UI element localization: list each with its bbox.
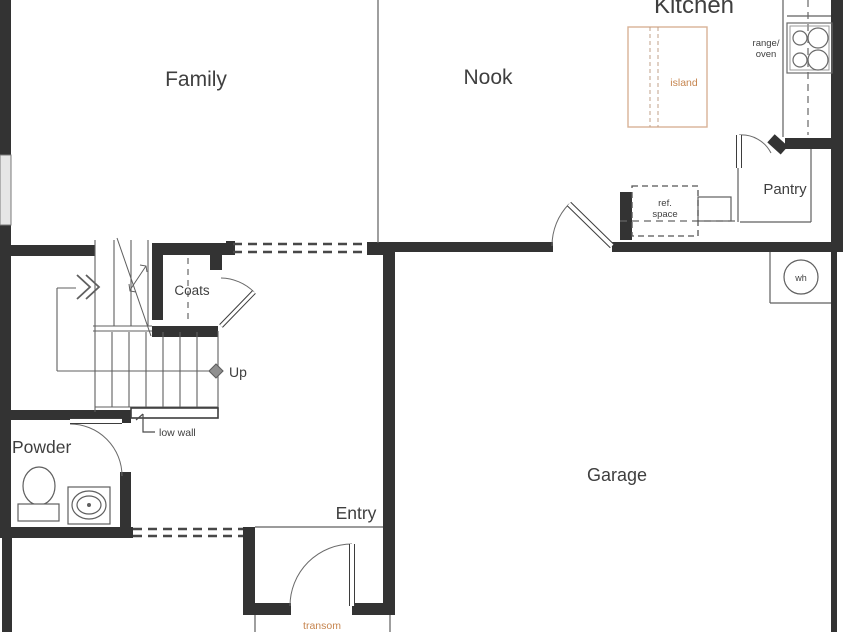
up-diamond-marker <box>209 364 223 378</box>
up-chevron-icon <box>86 275 99 299</box>
label-wh: wh <box>794 273 807 283</box>
wall-front-left <box>243 603 291 615</box>
low-wall <box>131 408 218 418</box>
walls <box>0 0 843 632</box>
label-ref-line1: ref. <box>658 198 672 209</box>
burner <box>808 50 828 70</box>
thin-lines <box>255 0 831 632</box>
label-coats: Coats <box>174 283 210 298</box>
stair-break-line <box>117 238 151 336</box>
label-transom: transom <box>303 620 341 632</box>
label-up: Up <box>229 364 247 380</box>
toilet-tank <box>18 504 59 521</box>
wall-garage-top <box>612 242 843 252</box>
window-left <box>0 155 11 225</box>
wall-left-mid <box>0 225 11 538</box>
label-family: Family <box>165 68 227 91</box>
wall-nook-south <box>394 242 553 252</box>
up-chevron-icon <box>77 275 90 299</box>
wall-coats-bottom <box>152 326 218 337</box>
nook-door-arc <box>552 204 569 246</box>
floor-plan: Kitchen Family Nook Pantry Coats Powder … <box>0 0 843 632</box>
toilet-bowl <box>23 467 55 505</box>
label-entry: Entry <box>336 503 377 523</box>
wall-coats-top <box>152 243 233 255</box>
label-kitchen: Kitchen <box>654 0 734 19</box>
burner <box>808 28 828 48</box>
label-range-line1: range/ <box>753 38 780 49</box>
pantry-door-arc <box>739 135 771 153</box>
wall-family-south-left <box>0 245 95 256</box>
coats-door-leaf-fill <box>221 292 254 326</box>
wall-entry-left <box>243 527 255 615</box>
burner <box>793 53 807 67</box>
label-garage: Garage <box>587 465 647 485</box>
doors <box>70 134 788 606</box>
wall-left-porch <box>2 538 12 632</box>
wall-coats-left <box>152 243 163 320</box>
stair-break-arrowhead <box>140 265 147 272</box>
wall-pantry-top <box>785 138 833 149</box>
powder-fixtures <box>18 467 110 524</box>
wall-powder-bottom <box>0 527 133 538</box>
sink-drain <box>88 504 91 507</box>
cabinet-box <box>698 197 731 221</box>
coats-door-arc <box>221 278 254 292</box>
wall-right-kitchen <box>831 0 843 252</box>
label-pantry: Pantry <box>763 181 807 198</box>
nook-door-leaf-fill <box>569 204 612 246</box>
burner <box>793 31 807 45</box>
label-island: island <box>670 77 698 89</box>
wall-coats-door-stub <box>210 255 222 270</box>
label-ref-line2: space <box>652 209 677 220</box>
powder-door-arc <box>70 424 122 476</box>
wall-entry-garage <box>383 242 395 615</box>
annotation-labels: island range/ oven ref. space wh Up low … <box>159 38 807 632</box>
wall-ref-stub <box>620 192 632 240</box>
range-oven <box>787 23 832 73</box>
wall-left-top <box>0 0 11 155</box>
wall-right-garage <box>831 252 837 632</box>
floor-plan-drawing: Kitchen Family Nook Pantry Coats Powder … <box>0 0 843 632</box>
label-nook: Nook <box>463 66 513 89</box>
label-powder: Powder <box>12 437 72 457</box>
label-low-wall: low wall <box>159 427 196 439</box>
label-range-line2: oven <box>756 49 777 60</box>
entry-door-arc <box>290 544 352 606</box>
wall-front-right <box>352 603 395 615</box>
stair-break-arrow <box>130 266 146 290</box>
